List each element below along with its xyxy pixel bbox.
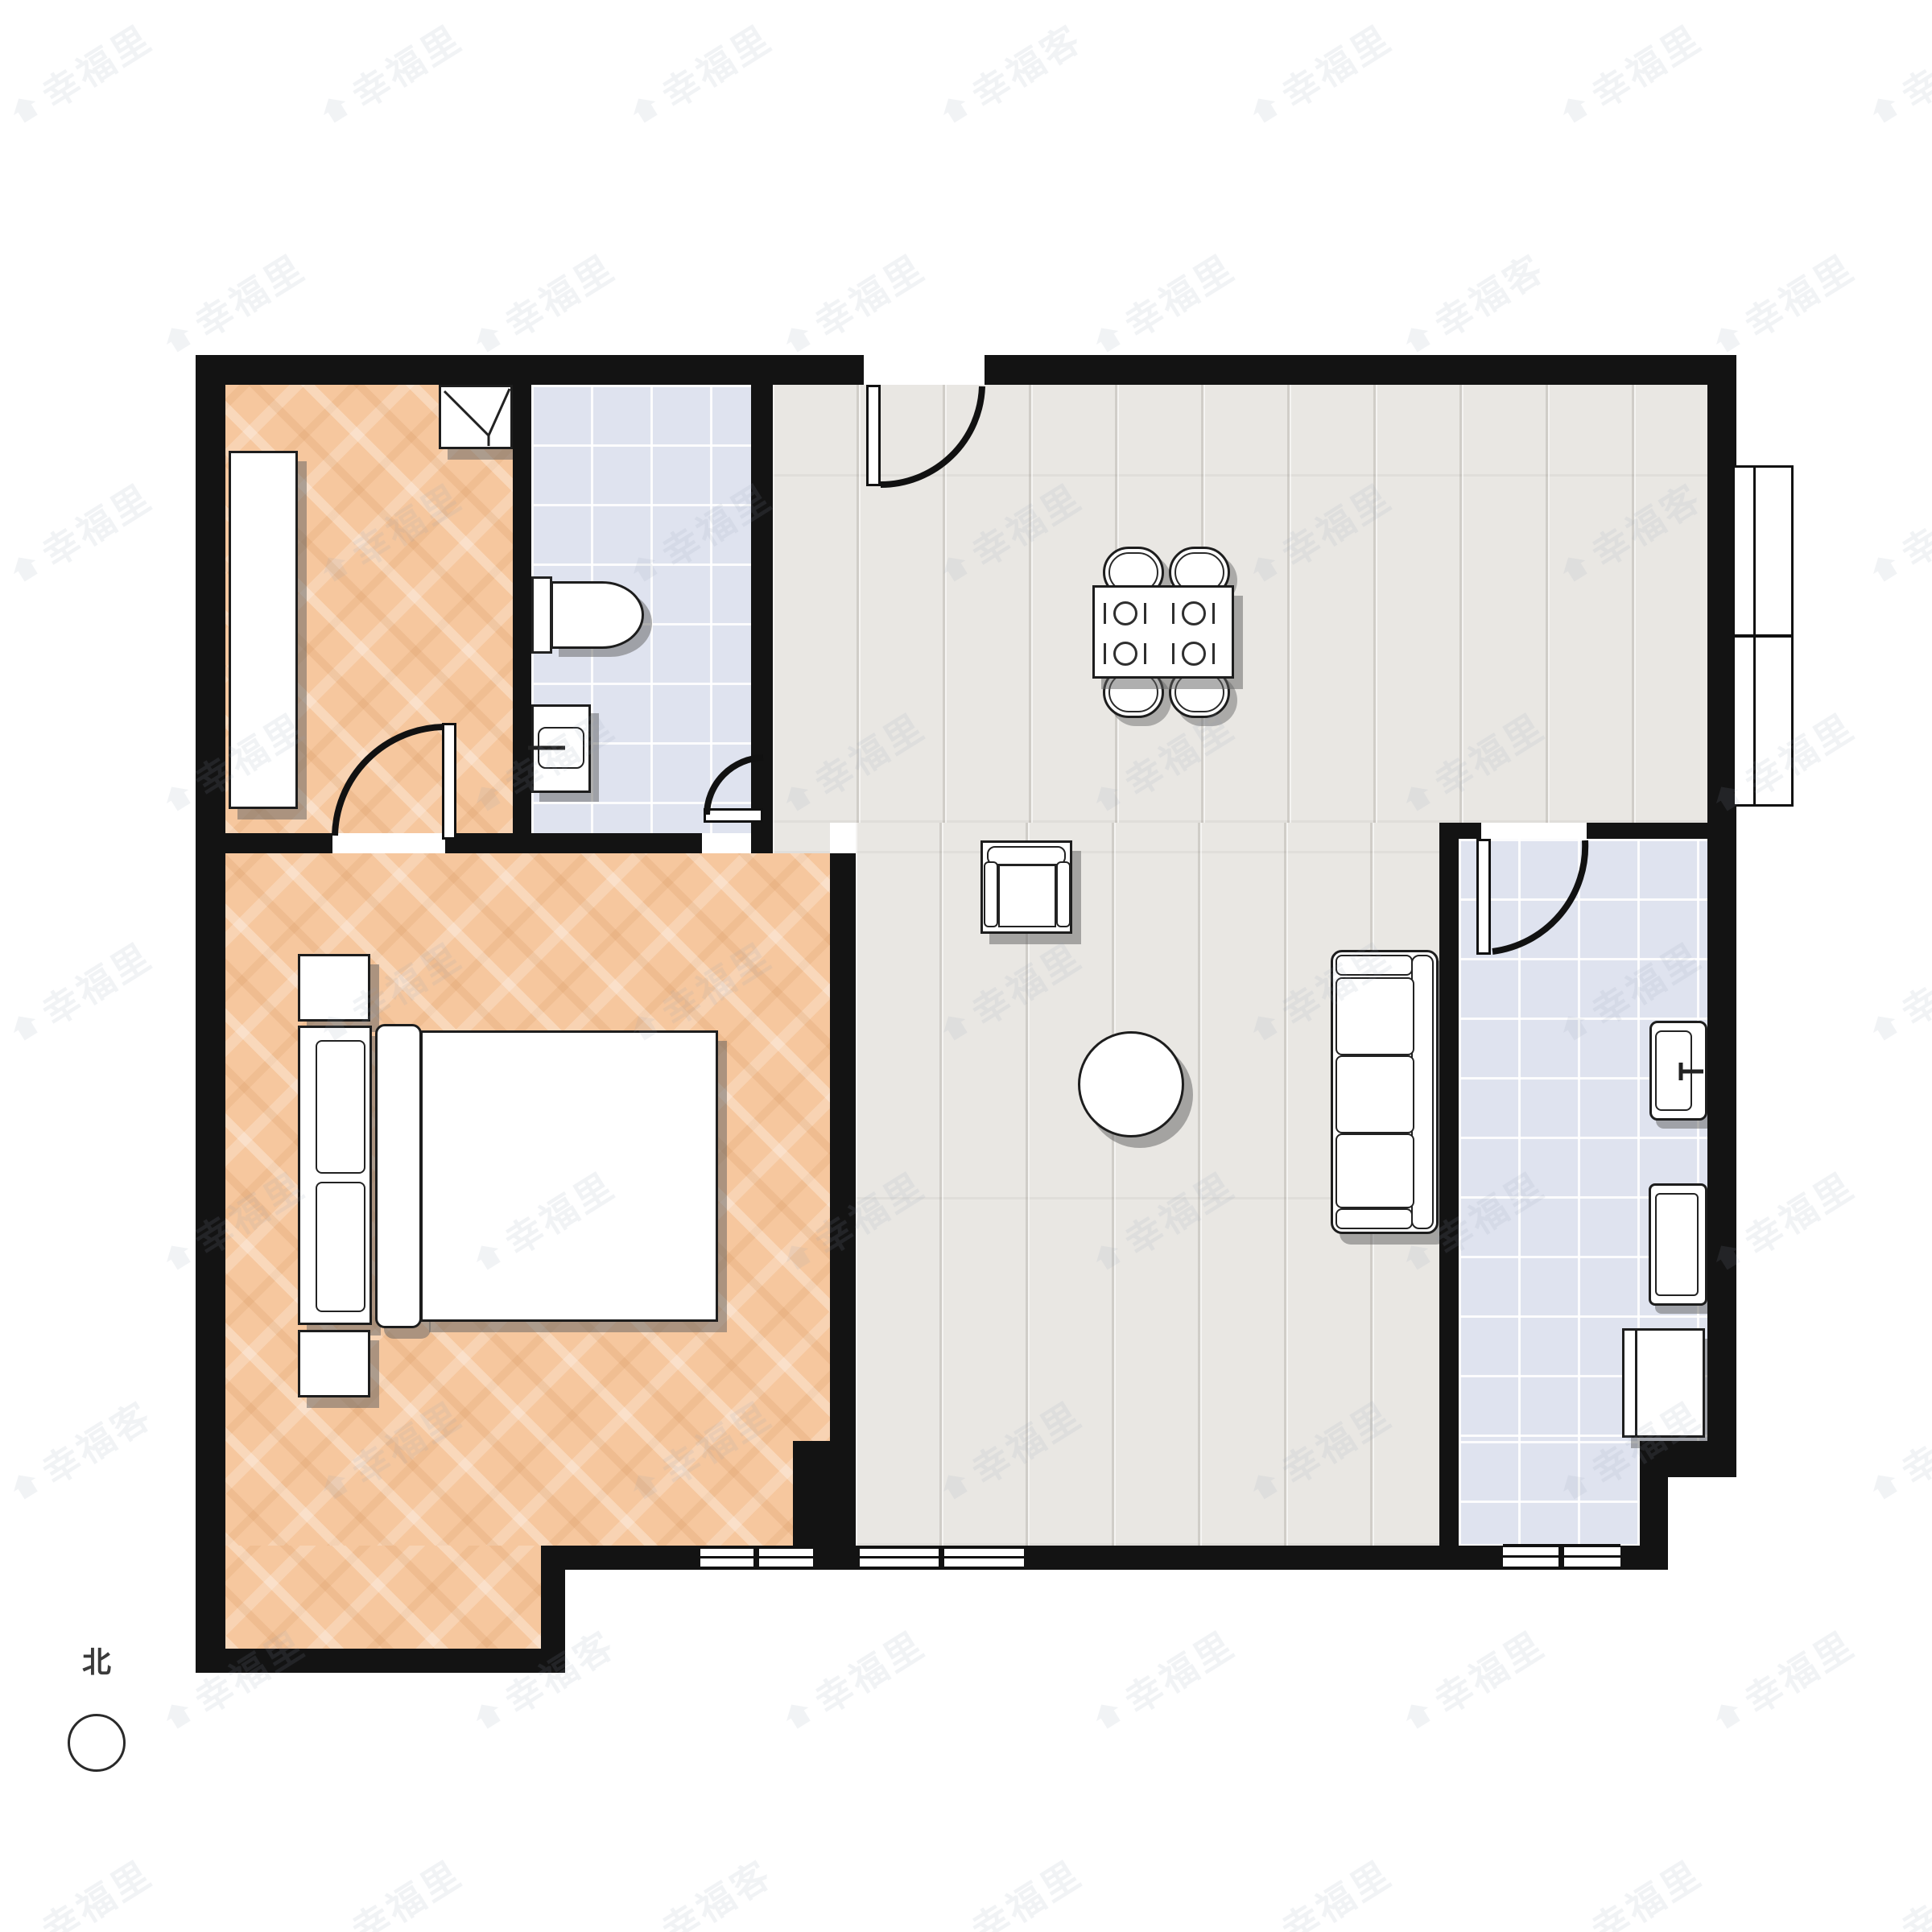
kitchen-faucet-icon (1681, 1063, 1703, 1080)
compass-north-label: 北 (68, 1639, 126, 1681)
entrance-door-arc (881, 386, 982, 485)
line-overlay (0, 0, 1932, 1932)
bathroom-door-arc (707, 758, 763, 815)
floorplan-canvas: 北 幸福里幸福里幸福里幸福里幸福客幸福里幸福里幸福里幸福里幸福里幸福里幸福里幸福… (0, 0, 1932, 1932)
corner-tv-screen-lines (444, 389, 510, 446)
compass-ring (68, 1714, 126, 1772)
secondary-bedroom-door-arc (335, 727, 444, 836)
kitchen-door-arc (1492, 840, 1585, 952)
